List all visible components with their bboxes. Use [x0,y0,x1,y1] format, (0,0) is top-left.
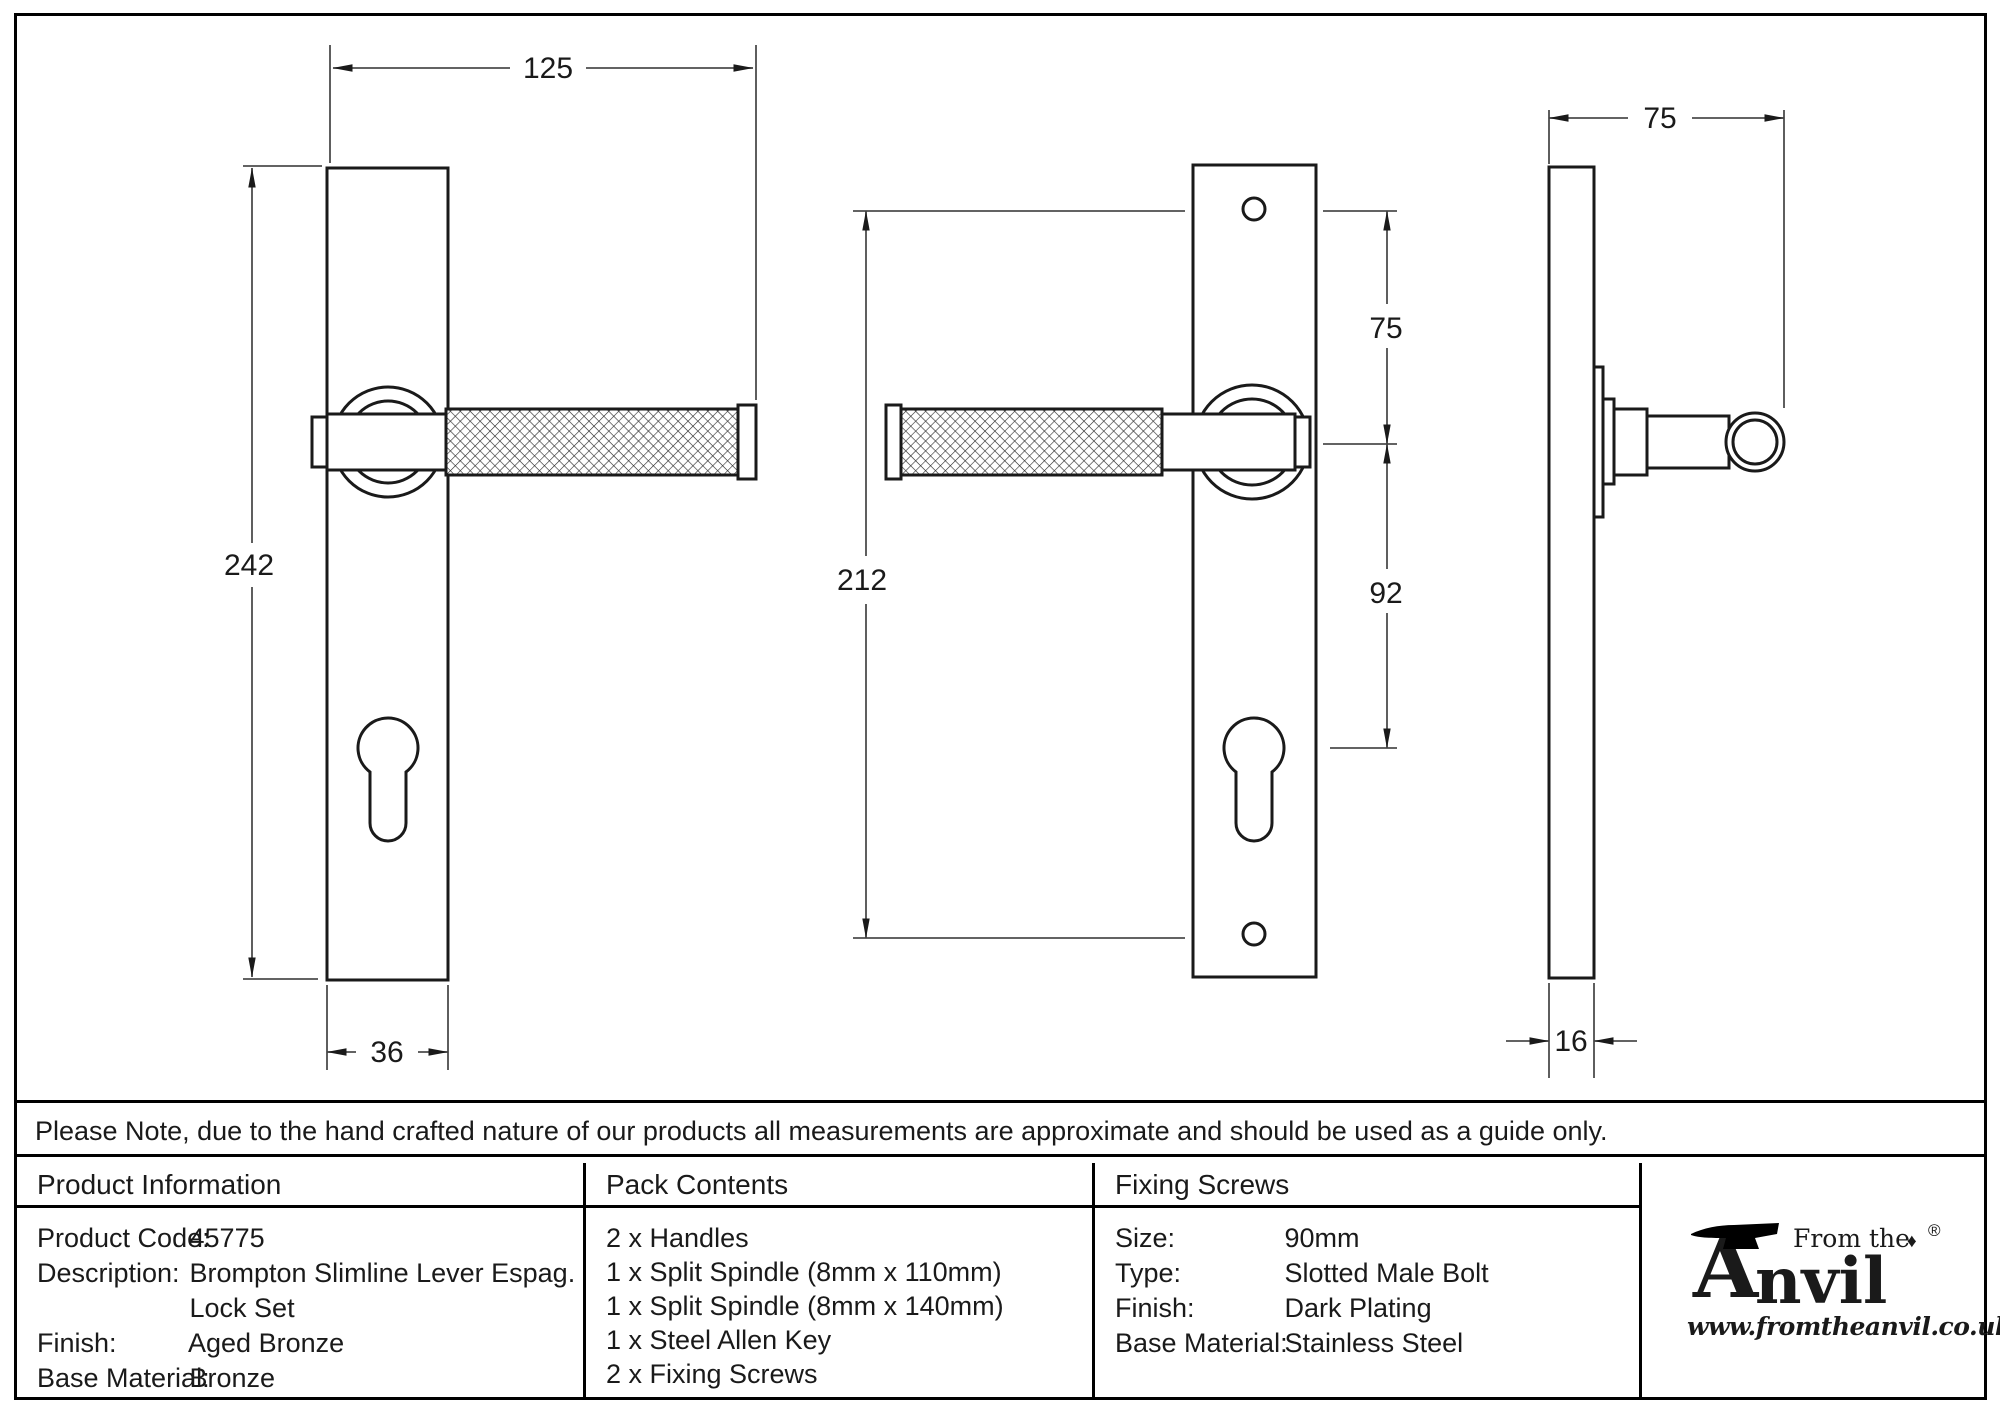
spec-sheet: 125 242 36 212 75 [14,13,1987,1400]
back-top-screw-hole [1243,198,1265,220]
logo-website-url: www.fromtheanvil.co.uk [1687,1312,2000,1341]
dim-back-handle-to-cylinder: 92 [1369,577,1402,610]
description-value-line1: Brompton Slimline Lever Espag. [190,1258,576,1288]
fixing-screws-column: Fixing Screws Size: 90mm Type: Slotted M… [1092,1163,1639,1397]
front-lever-knurled-grip [446,409,738,475]
dim-back-top-hole-to-handle: 75 [1369,312,1402,345]
diamond-icon: ♦ [1907,1232,1917,1251]
back-lever-collar [1295,417,1310,467]
logo-from-the-text: From the [1793,1226,1910,1251]
screw-size-label: Size: [1115,1224,1277,1252]
base-material-value: Bronze [190,1363,276,1393]
front-lever-collar [312,417,327,467]
side-grip-end-inner [1733,420,1777,464]
base-material-row: Base Material: Bronze [37,1364,583,1392]
product-code-label: Product Code: [37,1224,182,1252]
brand-column: A nvil From the ♦ ® www.fromtheanvil.co.… [1639,1163,1984,1397]
pack-item: 1 x Split Spindle (8mm x 140mm) [606,1292,1092,1320]
finish-label: Finish: [37,1329,182,1357]
dim-side-plate-depth: 16 [1554,1025,1587,1058]
front-lever-end-cap [738,405,756,479]
side-rose-ring [1603,399,1614,484]
finish-value: Aged Bronze [188,1328,344,1358]
side-backplate [1549,167,1594,978]
front-backplate [327,168,448,980]
dim-back-screw-centres: 212 [837,564,887,597]
description-row: Description: Brompton Slimline Lever Esp… [37,1259,583,1287]
screw-type-row: Type: Slotted Male Bolt [1115,1259,1639,1287]
screw-finish-value: Dark Plating [1285,1293,1432,1323]
screw-size-row: Size: 90mm [1115,1224,1639,1252]
product-information-column: Product Information Product Code: 45775 … [17,1163,583,1397]
product-information-body: Product Code: 45775 Description: Brompto… [17,1208,583,1392]
screw-finish-label: Finish: [1115,1294,1277,1322]
pack-item: 1 x Steel Allen Key [606,1326,1092,1354]
pack-item: 2 x Handles [606,1224,1092,1252]
description-row-continued: Lock Set [37,1294,583,1322]
pack-item: 2 x Fixing Screws [606,1360,1092,1388]
product-information-header: Product Information [17,1163,583,1208]
technical-drawings: 125 242 36 212 75 [17,16,1984,1100]
pack-contents-header: Pack Contents [586,1163,1092,1208]
description-value-line2: Lock Set [190,1293,295,1323]
measurement-note: Please Note, due to the hand crafted nat… [17,1100,1984,1157]
back-bottom-screw-hole [1243,923,1265,945]
front-lever-neck [327,414,446,470]
screw-finish-row: Finish: Dark Plating [1115,1294,1639,1322]
fixing-screws-header: Fixing Screws [1095,1163,1639,1208]
dim-front-overall-height: 242 [224,549,274,582]
side-lever-barrel [1647,416,1729,468]
back-lever-end-cap [886,405,901,479]
screw-type-value: Slotted Male Bolt [1285,1258,1489,1288]
back-lever-knurled-grip [901,409,1162,475]
front-view-dimensions [243,45,756,1070]
back-lever-neck [1162,414,1295,470]
dim-front-overall-width: 125 [523,52,573,85]
screw-base-material-value: Stainless Steel [1285,1328,1464,1358]
back-view-drawing [886,165,1316,977]
pack-item: 1 x Split Spindle (8mm x 110mm) [606,1258,1092,1286]
anvil-icon [1689,1222,1781,1252]
logo-letters-nvil: nvil [1755,1250,1887,1314]
dim-front-plate-width: 36 [370,1036,403,1069]
registered-trademark-icon: ® [1928,1222,1941,1239]
product-code-row: Product Code: 45775 [37,1224,583,1252]
side-view-drawing [1549,167,1784,978]
front-view-drawing [312,168,756,980]
screw-size-value: 90mm [1285,1223,1360,1253]
back-backplate [1193,165,1316,977]
dim-side-projection: 75 [1643,102,1676,135]
spec-table: Product Information Product Code: 45775 … [17,1163,1984,1397]
screw-type-label: Type: [1115,1259,1277,1287]
product-code-value: 45775 [190,1223,265,1253]
fixing-screws-body: Size: 90mm Type: Slotted Male Bolt Finis… [1095,1208,1639,1357]
from-the-anvil-logo: A nvil From the ♦ ® www.fromtheanvil.co.… [1681,1222,1945,1338]
screw-base-material-row: Base Material: Stainless Steel [1115,1329,1639,1357]
description-label: Description: [37,1259,182,1287]
base-material-label: Base Material: [37,1364,182,1392]
side-rose-boss [1614,409,1647,475]
screw-base-material-label: Base Material: [1115,1329,1277,1357]
pack-contents-column: Pack Contents 2 x Handles 1 x Split Spin… [583,1163,1092,1397]
pack-contents-body: 2 x Handles 1 x Split Spindle (8mm x 110… [586,1208,1092,1388]
finish-row: Finish: Aged Bronze [37,1329,583,1357]
